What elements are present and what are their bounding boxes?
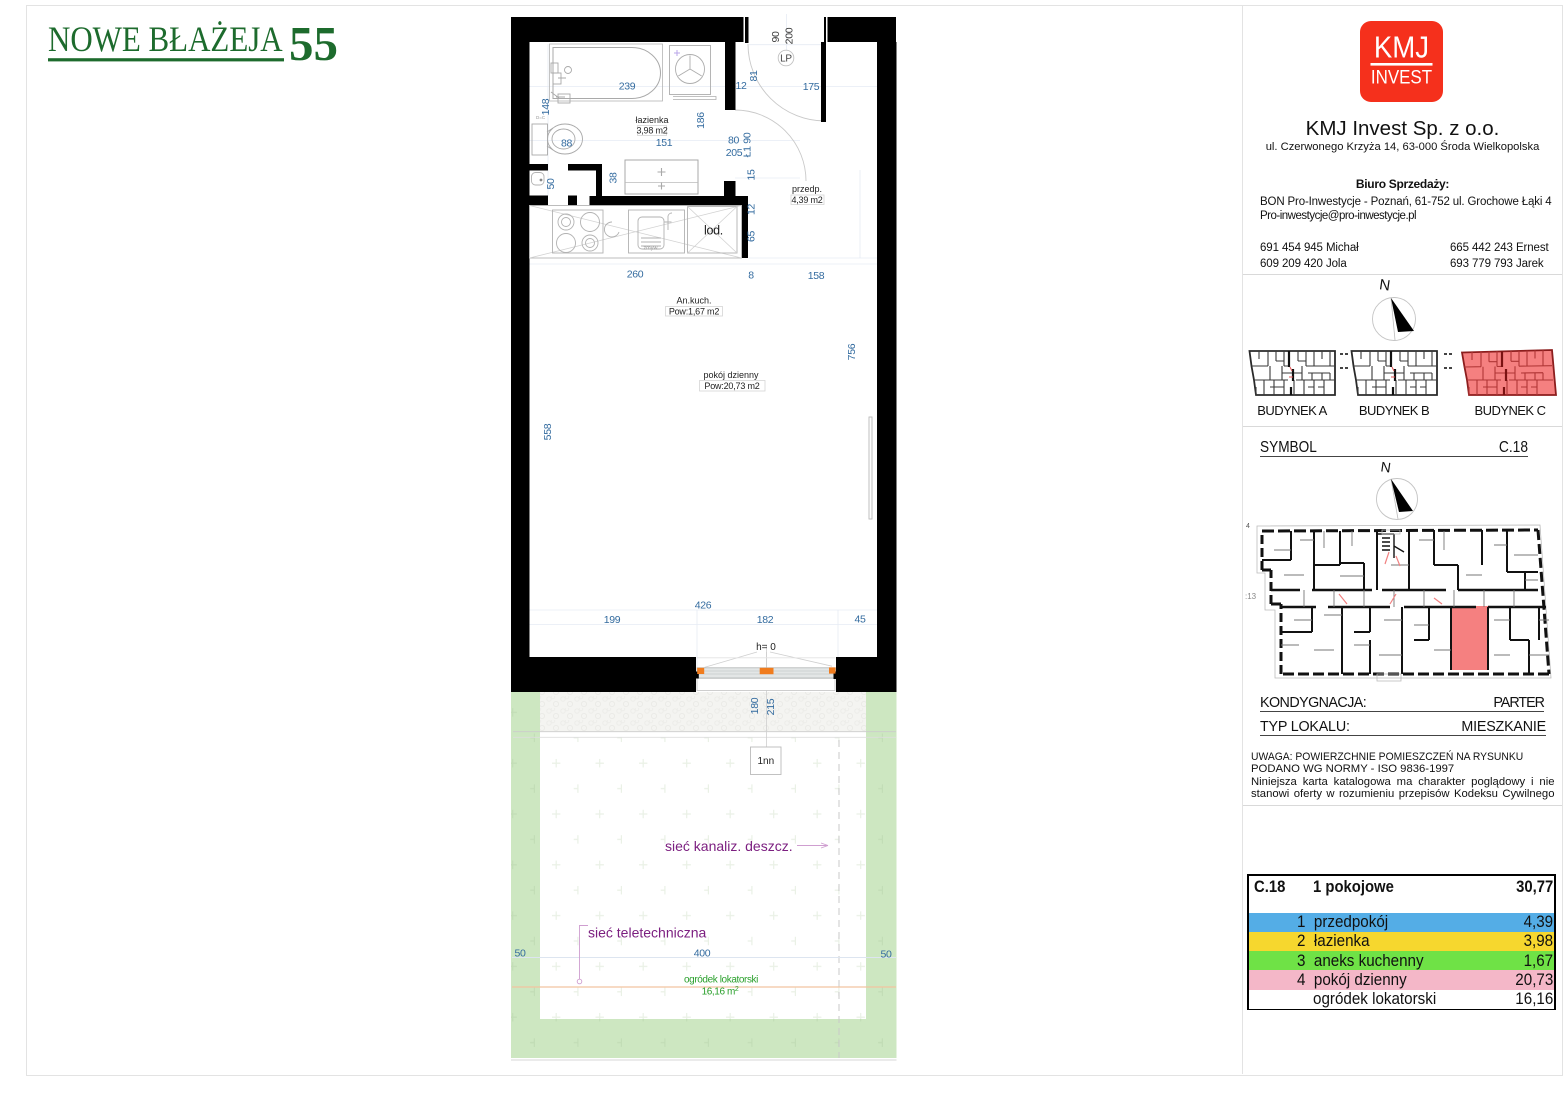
svg-text:sieć kanaliz. deszcz.: sieć kanaliz. deszcz. bbox=[665, 838, 793, 854]
svg-text:Pow:1,67 m2: Pow:1,67 m2 bbox=[669, 307, 720, 317]
svg-text:sieć teletechniczna: sieć teletechniczna bbox=[588, 925, 707, 941]
svg-text:LP: LP bbox=[780, 54, 792, 65]
svg-text:180: 180 bbox=[749, 697, 761, 714]
svg-text:148: 148 bbox=[540, 98, 552, 115]
svg-text:558: 558 bbox=[542, 423, 554, 440]
svg-text:205: 205 bbox=[726, 147, 743, 159]
svg-text:INVEST: INVEST bbox=[1371, 65, 1432, 87]
svg-text:4,39 m2: 4,39 m2 bbox=[791, 195, 822, 205]
svg-text:przedp.: przedp. bbox=[792, 184, 822, 194]
svg-text:151: 151 bbox=[656, 137, 673, 149]
svg-text:90: 90 bbox=[770, 31, 782, 43]
svg-text:12: 12 bbox=[746, 204, 758, 216]
svg-text:186: 186 bbox=[695, 112, 707, 129]
svg-text:38: 38 bbox=[608, 172, 620, 184]
svg-text:182: 182 bbox=[757, 614, 774, 626]
svg-text:4: 4 bbox=[1246, 523, 1250, 530]
svg-text:80: 80 bbox=[728, 135, 740, 147]
svg-text:260: 260 bbox=[627, 269, 644, 281]
svg-text:łazienka: łazienka bbox=[635, 115, 668, 125]
svg-text:Ł1 90: Ł1 90 bbox=[742, 132, 754, 157]
svg-text:426: 426 bbox=[695, 600, 712, 612]
svg-text:45: 45 bbox=[854, 614, 866, 626]
svg-text:Pow:20,73 m2: Pow:20,73 m2 bbox=[704, 381, 759, 391]
svg-text:lod.: lod. bbox=[704, 224, 723, 238]
svg-text:65: 65 bbox=[746, 231, 758, 243]
svg-text:88: 88 bbox=[561, 138, 573, 150]
svg-text:ogródek lokatorski: ogródek lokatorski bbox=[684, 975, 758, 986]
svg-text:239: 239 bbox=[619, 81, 636, 93]
svg-text:175: 175 bbox=[803, 81, 820, 93]
svg-text:215: 215 bbox=[765, 698, 777, 715]
svg-text:N: N bbox=[1380, 458, 1392, 475]
svg-text:15: 15 bbox=[746, 169, 758, 181]
svg-text:3,98 m2: 3,98 m2 bbox=[636, 126, 667, 136]
svg-text:zmyw.: zmyw. bbox=[643, 246, 659, 252]
svg-text:KMJ: KMJ bbox=[1374, 30, 1429, 65]
svg-text:NOWE BŁAŻEJA: NOWE BŁAŻEJA bbox=[48, 20, 283, 60]
svg-text:400: 400 bbox=[694, 948, 711, 960]
svg-text:16,16 m2: 16,16 m2 bbox=[702, 986, 739, 998]
svg-text:An.kuch.: An.kuch. bbox=[676, 296, 711, 306]
svg-text:81: 81 bbox=[748, 70, 760, 82]
svg-text:50: 50 bbox=[514, 948, 526, 960]
svg-text:N: N bbox=[1378, 276, 1391, 294]
svg-text:756: 756 bbox=[846, 343, 858, 360]
svg-text:pokój dzienny: pokój dzienny bbox=[703, 370, 759, 380]
svg-text:h= 0: h= 0 bbox=[756, 642, 776, 653]
svg-text:8: 8 bbox=[748, 270, 754, 282]
svg-text:199: 199 bbox=[604, 614, 621, 626]
svg-text:50: 50 bbox=[545, 178, 557, 190]
svg-text:1nn: 1nn bbox=[757, 756, 774, 767]
svg-text:12: 12 bbox=[735, 80, 747, 92]
svg-text:55: 55 bbox=[289, 16, 338, 71]
svg-text:200: 200 bbox=[784, 27, 796, 44]
svg-text:158: 158 bbox=[808, 270, 825, 282]
svg-text:50: 50 bbox=[880, 949, 892, 961]
